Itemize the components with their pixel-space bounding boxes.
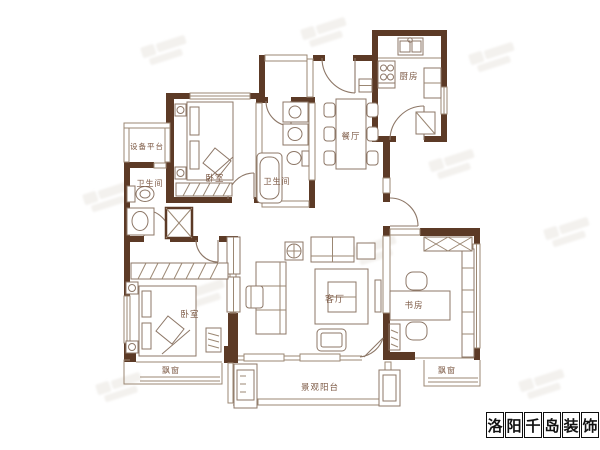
bath-mid-label: 卫生间 xyxy=(264,176,291,186)
bath-left-fixtures xyxy=(127,186,154,235)
study-radiator xyxy=(389,324,400,350)
study-cabinet-x xyxy=(424,237,472,251)
study-label: 书房 xyxy=(404,300,423,311)
bay-window-right-label: 飘窗 xyxy=(438,365,456,375)
brand-char: 阳 xyxy=(505,412,523,438)
bedroom-bottom-label: 卧室 xyxy=(180,309,199,320)
floorplan-page: 设备平台 卫生间 卧室 卫生间 厨房 餐厅 客厅 卧室 书房 飘窗 飘窗 景观阳… xyxy=(0,0,600,450)
bath-middle-fixtures xyxy=(257,102,309,203)
study-furniture xyxy=(389,237,474,357)
bedroom-bottom-furniture xyxy=(126,263,228,356)
bath-left-label: 卫生间 xyxy=(137,178,164,188)
wardrobe-bottom xyxy=(131,263,228,279)
balcony-sliding-door xyxy=(238,354,362,361)
brand-char: 装 xyxy=(562,412,580,438)
equipment-platform-label: 设备平台 xyxy=(130,141,164,151)
stove xyxy=(378,61,395,88)
wardrobe-top xyxy=(176,183,232,196)
duct-shaft xyxy=(166,208,192,238)
entry-cabinet xyxy=(359,79,372,92)
brand-char: 千 xyxy=(524,412,542,438)
brand-char: 洛 xyxy=(486,412,504,438)
kitchen-fixtures xyxy=(378,38,441,134)
floorplan-canvas: 设备平台 卫生间 卧室 卫生间 厨房 餐厅 客厅 卧室 书房 飘窗 飘窗 景观阳… xyxy=(0,0,600,450)
living-label: 客厅 xyxy=(325,293,345,305)
brand-char: 饰 xyxy=(581,412,599,438)
kitchen-label: 厨房 xyxy=(399,71,418,82)
balcony-label: 景观阳台 xyxy=(301,382,339,393)
dining-label: 餐厅 xyxy=(341,132,360,142)
brand-char: 岛 xyxy=(543,412,561,438)
bay-window-left-label: 飘窗 xyxy=(162,365,180,375)
living-furniture xyxy=(227,237,381,351)
brand-watermark: 洛 阳 千 岛 装 饰 xyxy=(486,412,599,438)
bedroom-top-label: 卧室 xyxy=(205,173,224,184)
radiator xyxy=(206,328,221,352)
